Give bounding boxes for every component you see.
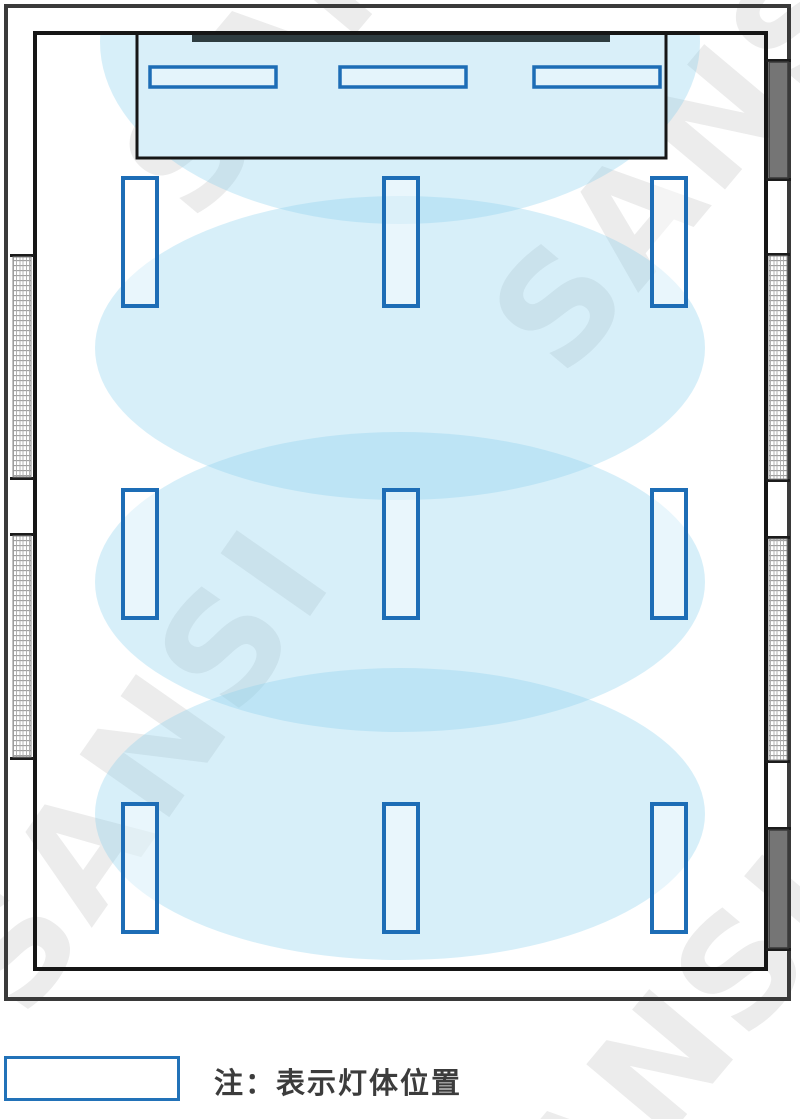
lamp-rect	[123, 178, 157, 306]
window-hatch	[13, 257, 31, 477]
podium-lamp-rect	[340, 67, 466, 87]
podium-area	[137, 33, 666, 158]
window-hatch	[13, 536, 31, 757]
lamp-rect	[384, 178, 418, 306]
lamp-rect	[652, 490, 686, 618]
door-bar	[769, 62, 788, 178]
window-hatch	[769, 539, 787, 760]
podium-lamp-rect	[534, 67, 660, 87]
room-layout-diagram	[0, 0, 800, 1119]
lamp-rect	[652, 178, 686, 306]
legend-lamp-swatch	[4, 1056, 180, 1101]
legend: 注：表示灯体位置	[0, 1050, 800, 1110]
door-bar	[769, 830, 788, 948]
window-hatch	[769, 256, 787, 479]
lamp-rect	[652, 804, 686, 932]
lamp-rect	[384, 490, 418, 618]
lamp-rect	[123, 804, 157, 932]
lamp-rect	[384, 804, 418, 932]
legend-note-label: 注：表示灯体位置	[214, 1060, 462, 1102]
lighting-layout-page: SANSISANSISANSISANSI 注：表示灯体位置	[0, 0, 800, 1119]
podium-lamp-rect	[150, 67, 276, 87]
blackboard-bar	[192, 35, 610, 42]
lamp-rect	[123, 490, 157, 618]
